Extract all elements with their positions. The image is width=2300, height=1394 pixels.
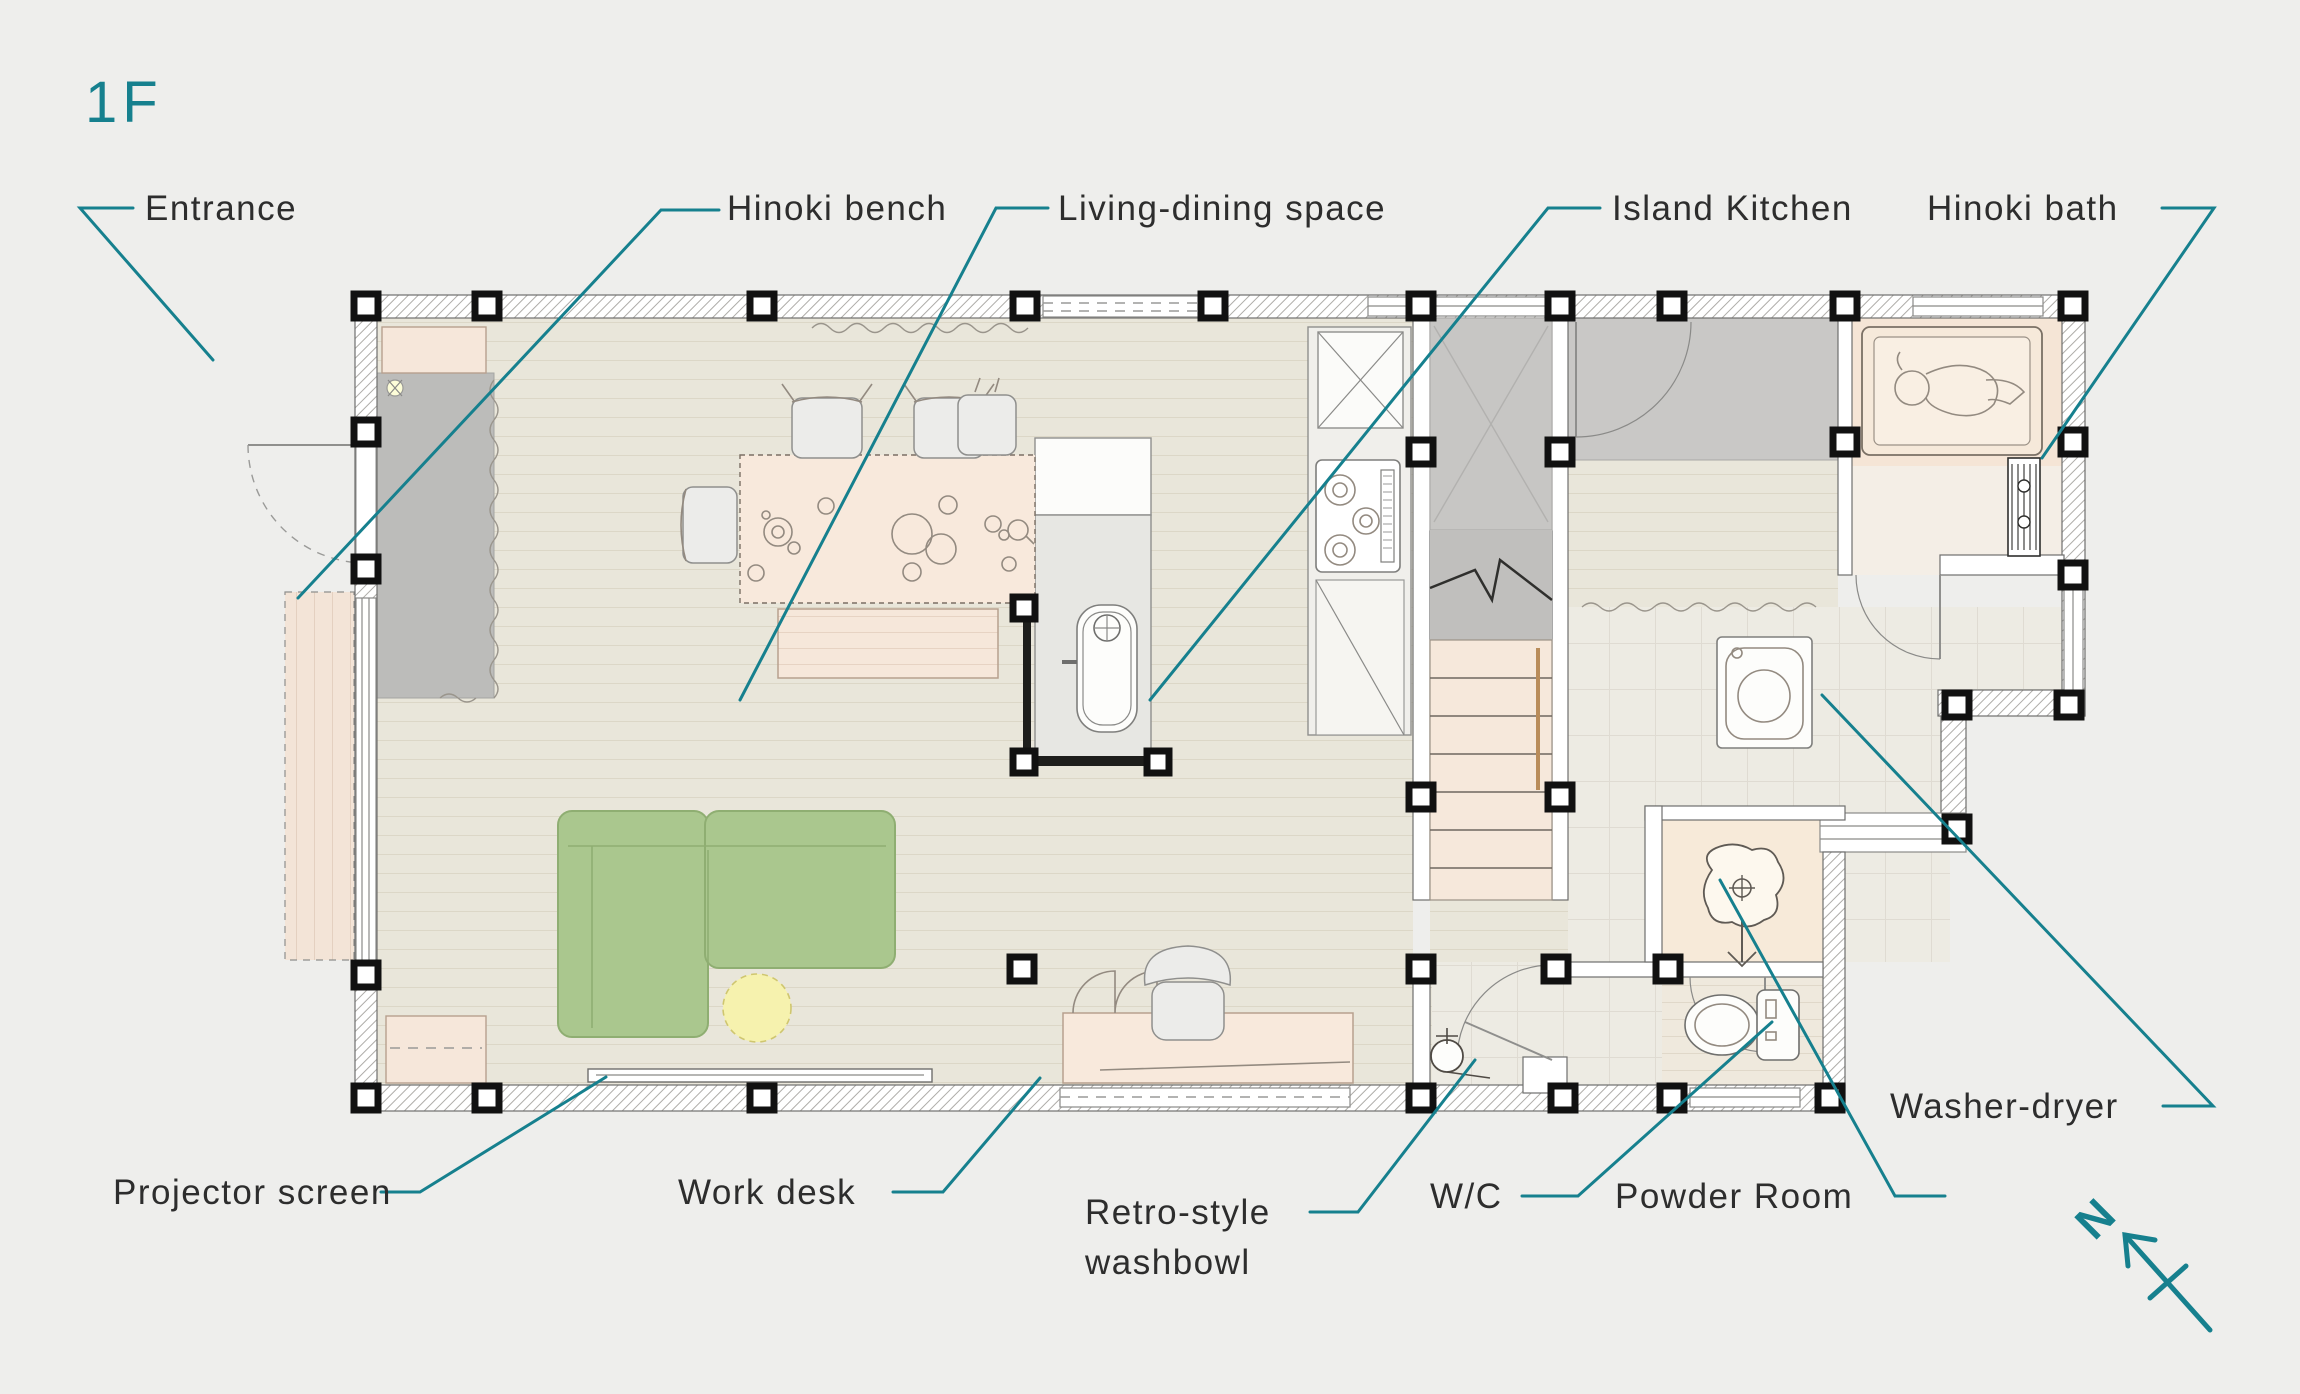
- wall-powder-west: [1645, 806, 1662, 962]
- retro-washbowl-fixture: [1431, 1040, 1463, 1072]
- label-hinoki-bath: Hinoki bath: [1927, 189, 2119, 228]
- shoe-cabinet: [382, 327, 486, 373]
- ldk-floor: [377, 318, 1413, 1085]
- dining-chair-1: [792, 398, 862, 458]
- desk-chair-seat: [1152, 982, 1224, 1040]
- label-projector-screen: Projector screen: [113, 1173, 392, 1212]
- laundry-tile-floor2: [1950, 607, 2062, 702]
- round-rug: [723, 974, 791, 1042]
- hallway-floor-east: [1568, 460, 1838, 610]
- stairs: [1430, 318, 1552, 900]
- floor-plan-canvas: 1F Entrance Hinoki bench Living-dining s…: [0, 0, 2300, 1394]
- label-wc: W/C: [1430, 1177, 1503, 1216]
- north-letter: N: [2065, 1189, 2125, 1249]
- leader-entrance: [80, 208, 213, 360]
- entrance-opening: [356, 440, 376, 570]
- label-powder-room: Powder Room: [1615, 1177, 1853, 1216]
- island-counter-top: [1035, 438, 1151, 515]
- hinoki-bench-strip: [285, 592, 354, 960]
- label-work-desk: Work desk: [678, 1173, 856, 1212]
- floor-plan-page: 1F Entrance Hinoki bench Living-dining s…: [0, 0, 2300, 1394]
- wall-bath-south: [1940, 555, 2064, 575]
- label-washer-dryer: Washer-dryer: [1890, 1087, 2119, 1126]
- label-retro-washbowl-1: Retro-style: [1085, 1193, 1271, 1232]
- label-entrance: Entrance: [145, 189, 297, 228]
- dining-bench: [778, 609, 998, 678]
- powder-washbowl: [1704, 844, 1784, 926]
- wall-powder-north: [1645, 806, 1845, 820]
- label-hinoki-bench: Hinoki bench: [727, 189, 947, 228]
- floor-title: 1F: [85, 70, 163, 135]
- sofa-chaise: [558, 811, 708, 1037]
- north-arrow: N: [2065, 1189, 2210, 1330]
- hinoki-bench-deck: [285, 592, 354, 960]
- north-sliding-door: [1043, 296, 1205, 317]
- stairs-treads: [1430, 640, 1552, 900]
- entrance-doma-floor: [377, 373, 494, 698]
- sofa-seat: [705, 811, 895, 968]
- west-window: [356, 598, 376, 962]
- dining-table: [740, 455, 1035, 603]
- label-retro-washbowl-2: washbowl: [1084, 1243, 1251, 1282]
- island-rail-bottom: [1020, 756, 1162, 766]
- island-rail-left: [1023, 600, 1031, 766]
- label-living-dining: Living-dining space: [1058, 189, 1386, 228]
- wall-wc-north: [1565, 962, 1823, 977]
- changing-room-floor: [1568, 318, 1838, 460]
- toilet-tank: [1757, 990, 1799, 1060]
- high-chair: [958, 395, 1016, 455]
- dining-chair-3: [683, 487, 737, 563]
- corner-cabinet: [386, 1016, 486, 1083]
- label-island-kitchen: Island Kitchen: [1612, 189, 1853, 228]
